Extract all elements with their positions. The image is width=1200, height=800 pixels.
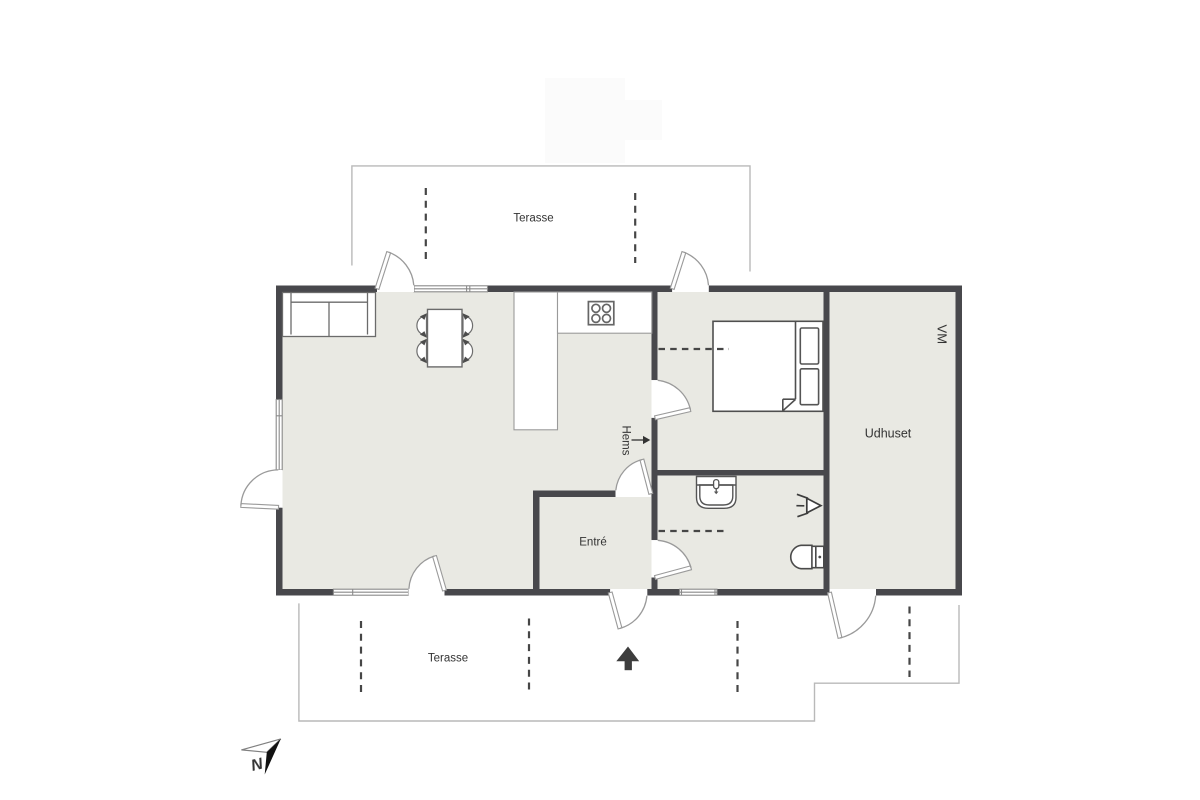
- svg-text:N: N: [249, 755, 265, 774]
- svg-text:Hems: Hems: [620, 425, 632, 455]
- svg-text:Udhuset: Udhuset: [865, 427, 912, 441]
- svg-text:Terasse: Terasse: [513, 213, 553, 225]
- svg-text:Entré: Entré: [579, 537, 607, 549]
- svg-text:Terasse: Terasse: [428, 653, 468, 665]
- svg-text:VM: VM: [935, 325, 950, 345]
